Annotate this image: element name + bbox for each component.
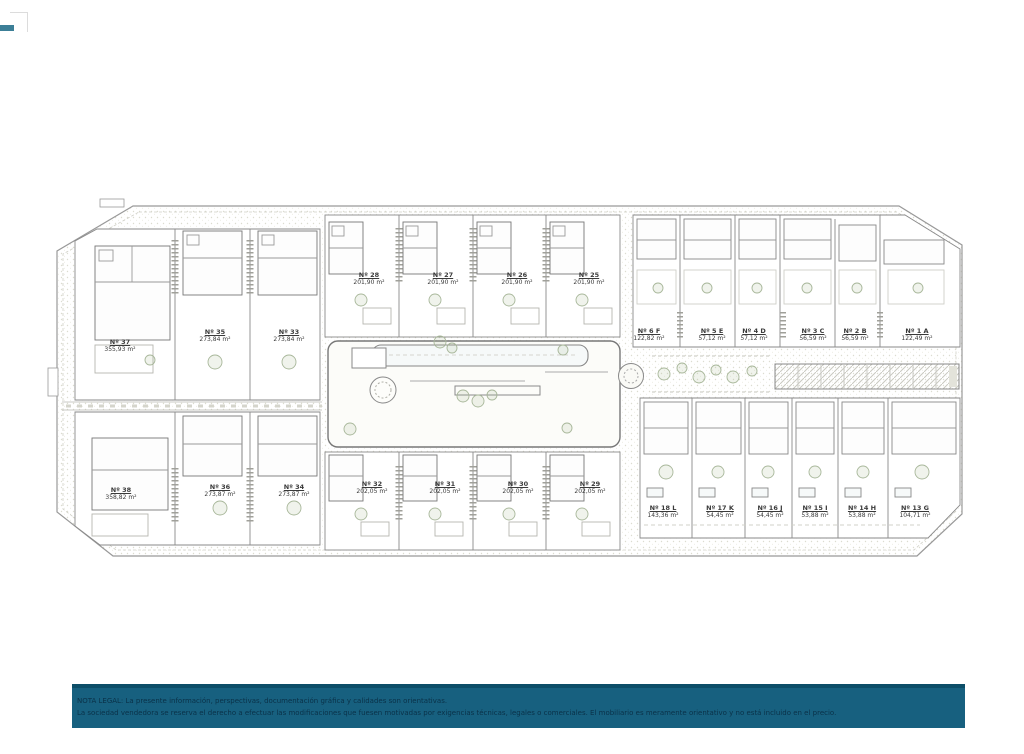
legal-note-line2: La sociedad vendedora se reserva el dere… [77,708,965,720]
site-plan-drawing [0,0,1024,754]
block-left-top [75,229,320,400]
block-left-bottom [75,412,320,545]
roundabout [619,364,644,389]
legal-note-line1: NOTA LEGAL: La presente información, per… [77,696,965,708]
courtyard-pool-area [328,341,620,447]
block-right-bottom [640,398,960,538]
block-right-top [633,215,960,347]
legal-note-bar: NOTA LEGAL: La presente información, per… [72,684,965,728]
linear-building-right [775,364,959,389]
